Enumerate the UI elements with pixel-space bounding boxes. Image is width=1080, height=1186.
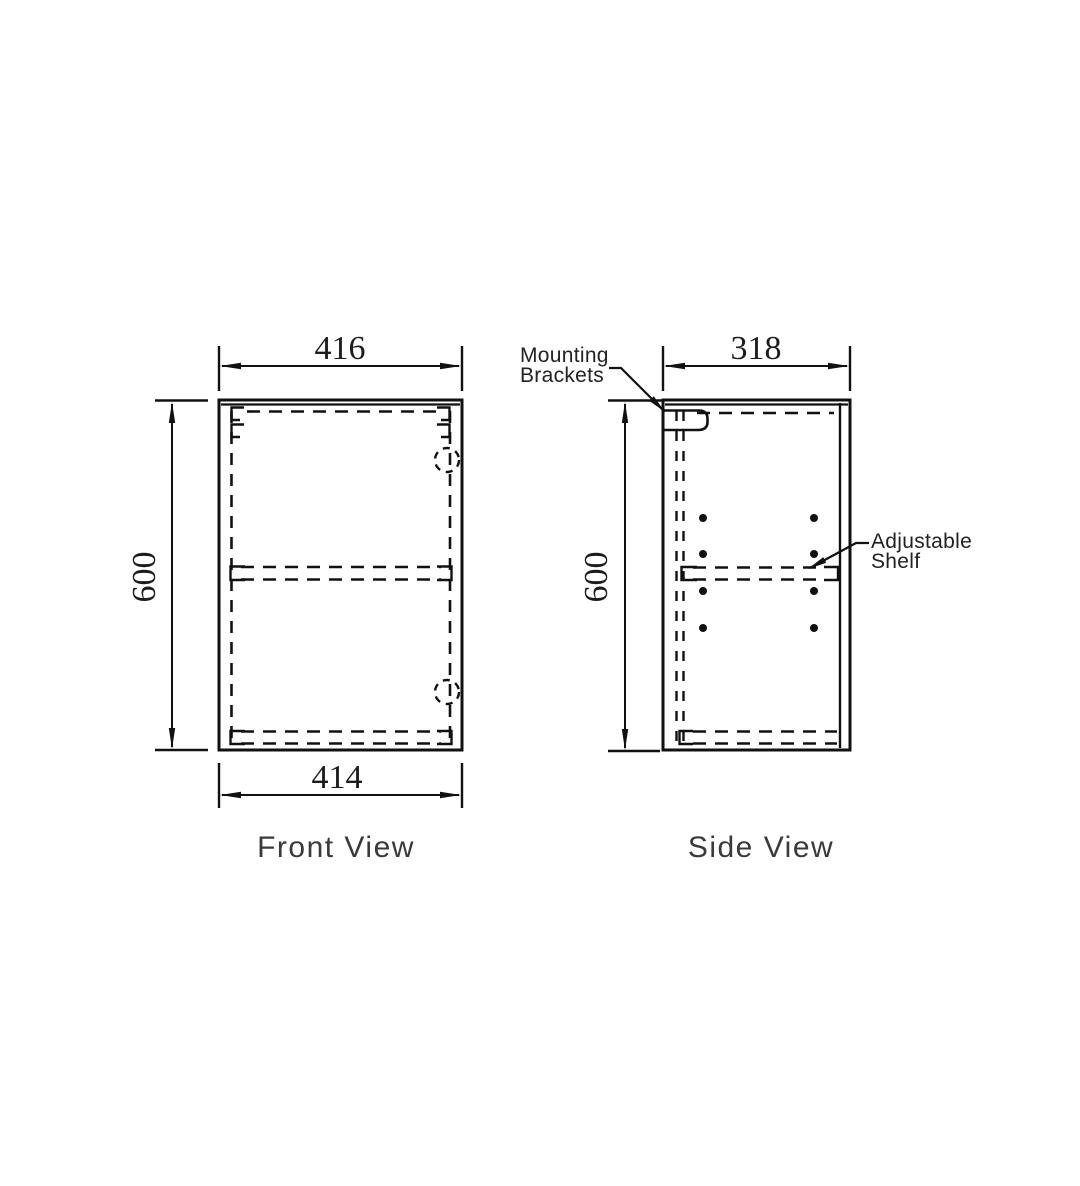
pin-hole	[810, 624, 818, 632]
pin-hole	[699, 624, 707, 632]
pin-hole	[699, 587, 707, 595]
dimension-value-318: 318	[731, 330, 782, 367]
front-view-caption: Front View	[257, 831, 415, 864]
pin-hole	[810, 514, 818, 522]
pin-hole	[699, 514, 707, 522]
dimension-value-416: 416	[315, 330, 366, 367]
dimension-value-600-side: 600	[578, 552, 615, 603]
mounting-brackets-label-line2: Brackets	[520, 364, 604, 387]
technical-drawing-page: 416 600 414 Front View	[0, 0, 1080, 1186]
pin-hole	[810, 587, 818, 595]
pin-hole	[810, 550, 818, 558]
cabinet-technical-drawing: 416 600 414 Front View	[0, 0, 1080, 1186]
adjustable-shelf-label-line2: Shelf	[871, 550, 920, 573]
dimension-value-414: 414	[312, 759, 363, 796]
side-view-caption: Side View	[688, 831, 834, 864]
dimension-value-600-front: 600	[126, 552, 163, 603]
pin-hole	[699, 550, 707, 558]
